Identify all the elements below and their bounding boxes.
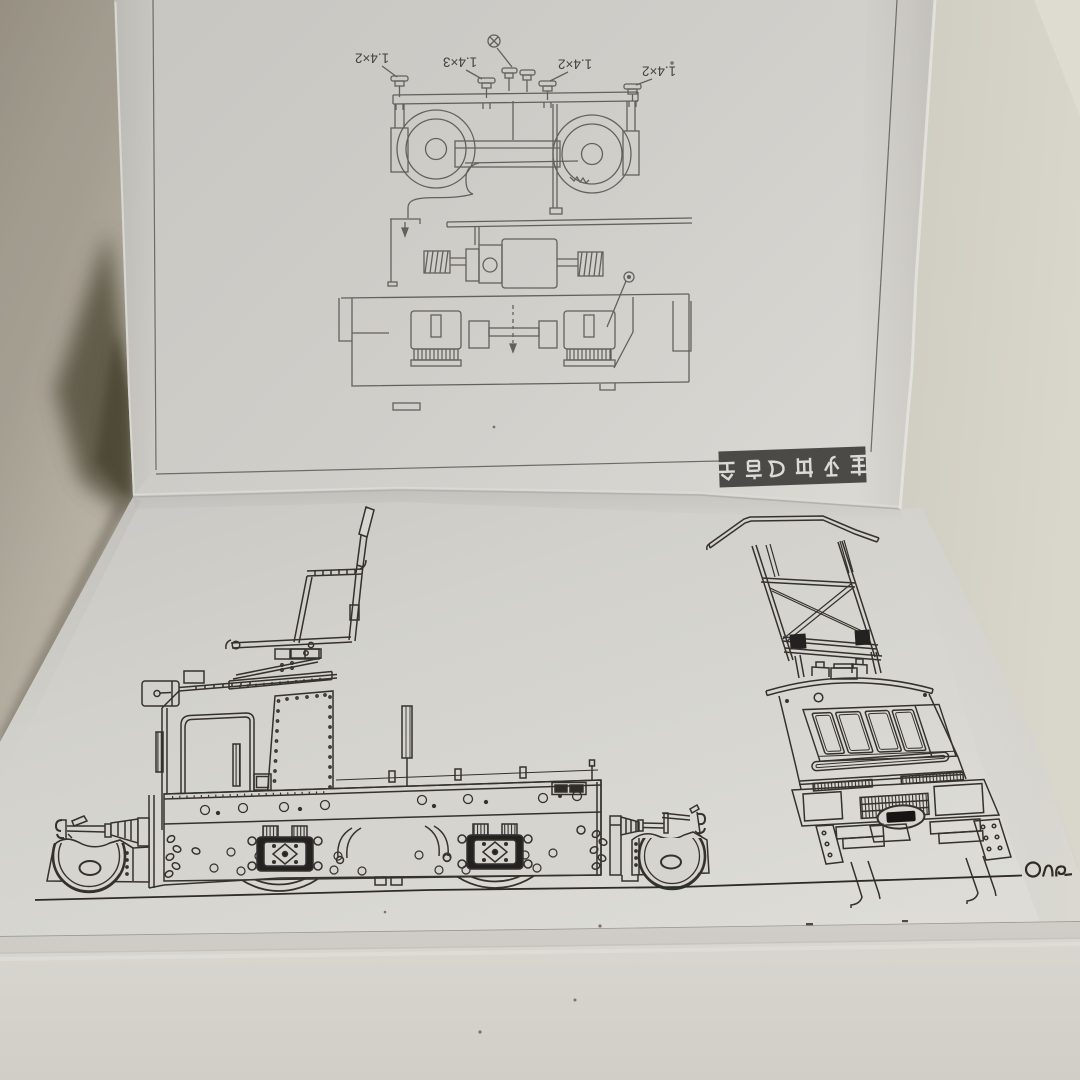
svg-text:1.4×2: 1.4×2 (355, 50, 389, 65)
svg-text:1.4×2: 1.4×2 (558, 56, 592, 71)
svg-text:1.4×3: 1.4×3 (443, 54, 477, 69)
svg-text:1.4×2: 1.4×2 (642, 63, 676, 78)
